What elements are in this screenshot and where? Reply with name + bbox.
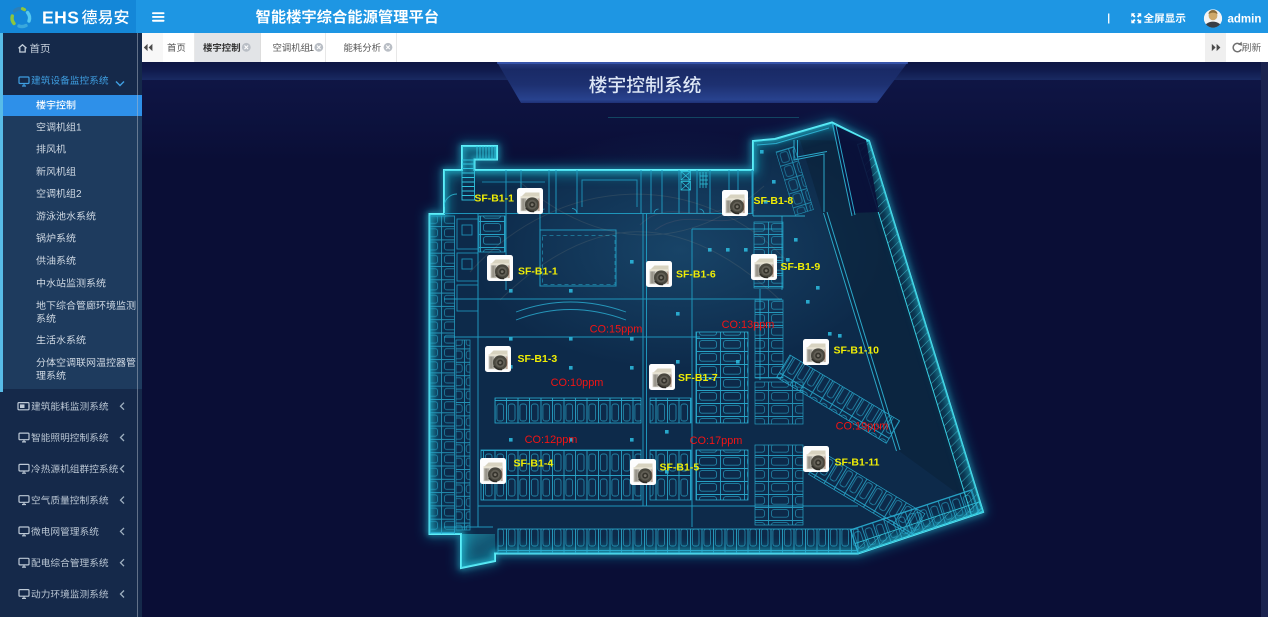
svg-text:admin: admin [1228,13,1262,25]
svg-text:2: 2 [76,189,82,200]
svg-text:SF-B1-10: SF-B1-10 [834,345,880,357]
svg-text:SF-B1-11: SF-B1-11 [835,457,880,469]
svg-text:SF-B1-5: SF-B1-5 [660,462,700,474]
svg-text:CO:13ppm: CO:13ppm [722,319,775,331]
svg-text:EHS: EHS [42,8,79,28]
svg-text:SF-B1-7: SF-B1-7 [678,372,718,384]
svg-text:CO:15ppm: CO:15ppm [590,324,643,336]
svg-text:CO:12ppm: CO:12ppm [525,434,578,446]
svg-text:SF-B1-1: SF-B1-1 [518,266,558,278]
svg-text:CO:17ppm: CO:17ppm [690,435,743,447]
svg-text:SF-B1-8: SF-B1-8 [754,195,794,207]
svg-text:SF-B1-9: SF-B1-9 [781,261,821,273]
svg-text:CO:10ppm: CO:10ppm [551,377,604,389]
svg-text:SF-B1-1: SF-B1-1 [474,193,514,205]
svg-text:SF-B1-3: SF-B1-3 [518,353,558,365]
svg-text:SF-B1-6: SF-B1-6 [676,269,716,281]
svg-text:CO:19ppm: CO:19ppm [836,421,889,433]
svg-text:SF-B1-4: SF-B1-4 [514,458,554,470]
svg-text:1: 1 [76,123,82,134]
